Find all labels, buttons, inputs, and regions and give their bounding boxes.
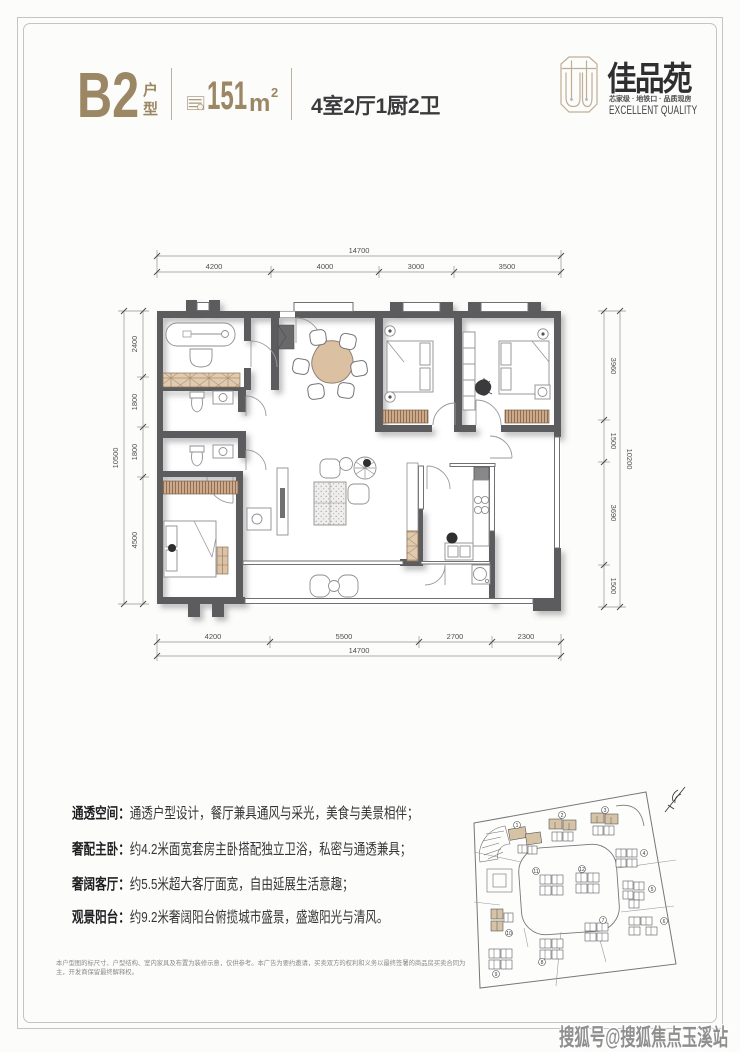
svg-text:10200: 10200 <box>625 449 634 470</box>
svg-text:3500: 3500 <box>499 262 516 271</box>
svg-text:4500: 4500 <box>130 532 139 549</box>
svg-text:11: 11 <box>533 869 538 875</box>
svg-text:2300: 2300 <box>518 632 535 641</box>
svg-text:12: 12 <box>579 867 585 873</box>
svg-text:14700: 14700 <box>349 246 370 255</box>
svg-text:3: 3 <box>604 808 607 814</box>
svg-text:7: 7 <box>602 918 605 924</box>
svg-text:8: 8 <box>541 960 544 966</box>
svg-text:10500: 10500 <box>111 448 120 469</box>
svg-text:2400: 2400 <box>130 336 139 353</box>
svg-text:4000: 4000 <box>317 262 334 271</box>
svg-text:3960: 3960 <box>609 358 618 375</box>
svg-text:10: 10 <box>506 931 512 937</box>
svg-text:4200: 4200 <box>205 632 222 641</box>
svg-text:1: 1 <box>516 823 519 829</box>
svg-text:5: 5 <box>651 887 654 893</box>
svg-text:9: 9 <box>495 972 498 978</box>
svg-text:1500: 1500 <box>609 578 618 595</box>
svg-text:1800: 1800 <box>130 444 139 461</box>
svg-text:5500: 5500 <box>336 632 353 641</box>
svg-text:1800: 1800 <box>130 394 139 411</box>
svg-text:3690: 3690 <box>609 505 618 522</box>
svg-text:2: 2 <box>561 813 564 819</box>
svg-text:3000: 3000 <box>408 262 425 271</box>
svg-text:6: 6 <box>663 919 666 925</box>
svg-text:4200: 4200 <box>206 262 223 271</box>
svg-text:1500: 1500 <box>609 433 618 450</box>
svg-text:14700: 14700 <box>349 646 370 655</box>
svg-text:4: 4 <box>643 851 646 857</box>
svg-text:2700: 2700 <box>447 632 464 641</box>
